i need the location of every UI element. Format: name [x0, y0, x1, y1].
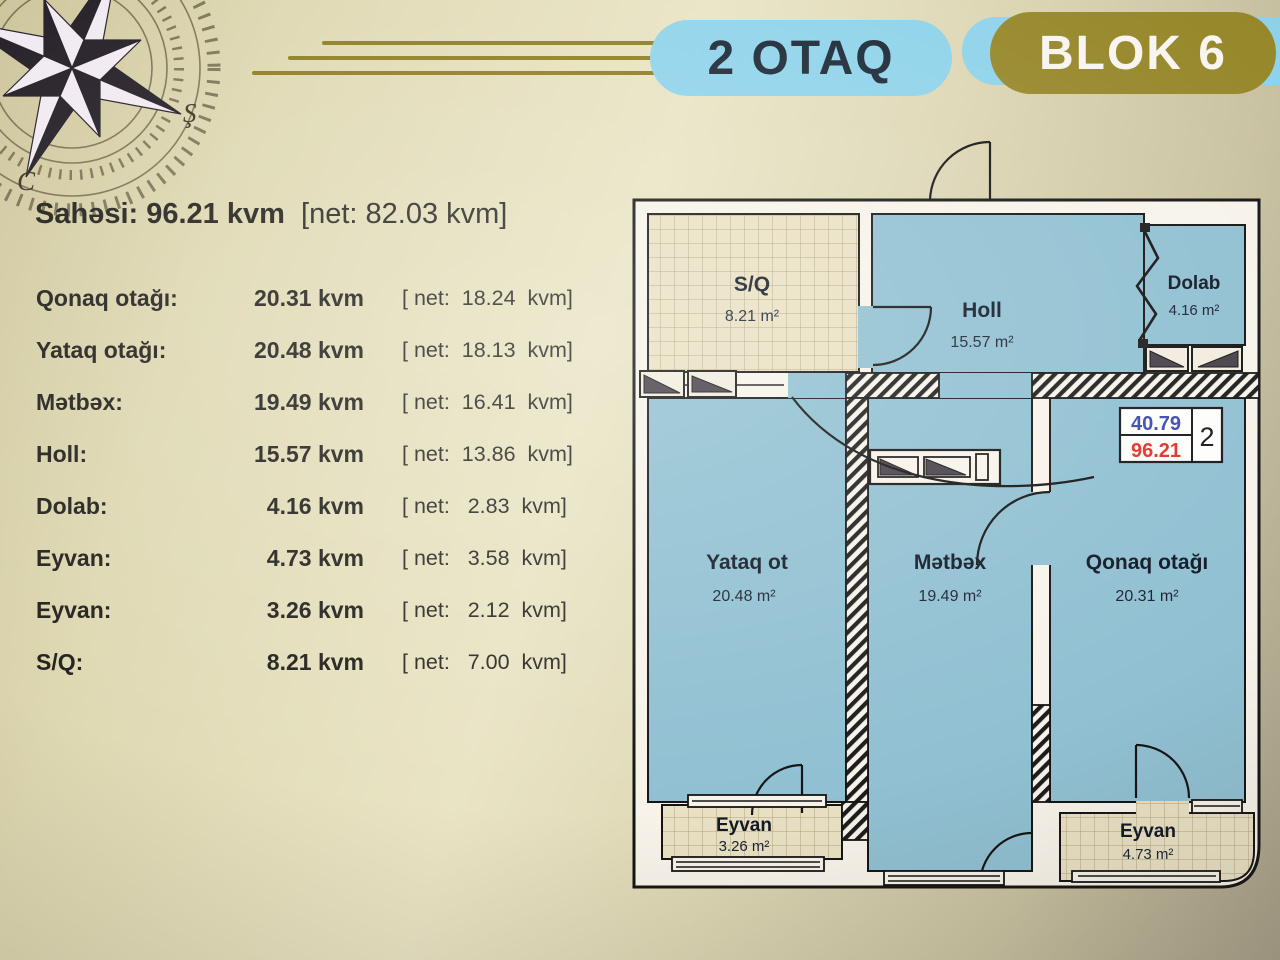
- deco-line-1: [322, 41, 660, 45]
- table-row: Holl:15.57 kvm[ net: 13.86 kvm]: [36, 428, 611, 480]
- compass-label-c: C: [17, 166, 36, 196]
- row-net: [ net: 16.41 kvm]: [402, 390, 573, 415]
- table-row: Dolab:4.16 kvm[ net: 2.83 kvm]: [36, 480, 611, 532]
- row-label: Eyvan:: [36, 545, 216, 572]
- summary-gross: 96.21 kvm: [146, 198, 285, 230]
- opening-yataq: [788, 373, 846, 398]
- row-net: [ net: 18.24 kvm]: [402, 286, 573, 311]
- summary-label: Sahəsi:: [35, 198, 138, 230]
- total-area-summary: Sahəsi: 96.21 kvm [net: 82.03 kvm]: [35, 198, 507, 231]
- row-net: [ net: 2.12 kvm]: [402, 598, 567, 623]
- table-row: Qonaq otağı:20.31 kvm[ net: 18.24 kvm]: [36, 272, 611, 324]
- floor-plan: 40.79 96.21 2 S/Q 8.21 m² Holl 15.57 m² …: [632, 85, 1277, 895]
- vent-shafts-dolab: [1146, 347, 1242, 371]
- row-label: Holl:: [36, 441, 216, 468]
- table-row: Eyvan:3.26 kvm[ net: 2.12 kvm]: [36, 584, 611, 636]
- label-dolab: Dolab: [1168, 273, 1221, 294]
- row-value: 4.16 kvm: [216, 493, 364, 520]
- block-number-pill: BLOK 6: [990, 12, 1276, 94]
- label-sq: S/Q: [734, 273, 770, 296]
- room-area-table: Qonaq otağı:20.31 kvm[ net: 18.24 kvm] Y…: [36, 272, 611, 688]
- label-eyvan-big: Eyvan: [1120, 821, 1176, 842]
- area-sq: 8.21 m²: [725, 308, 780, 325]
- row-label: Eyvan:: [36, 597, 216, 624]
- table-row: Eyvan:4.73 kvm[ net: 3.58 kvm]: [36, 532, 611, 584]
- label-metbex: Mətbəx: [914, 551, 987, 574]
- summary-net: [net: 82.03 kvm]: [301, 198, 507, 230]
- vent-shafts-sq: [640, 371, 736, 397]
- row-value: 20.31 kvm: [216, 285, 364, 312]
- compass-star: [0, 0, 181, 177]
- deco-line-3: [252, 71, 660, 75]
- badge-gross-value: 96.21: [1131, 440, 1181, 462]
- row-net: [ net: 7.00 kvm]: [402, 650, 567, 675]
- label-yataq: Yataq ot: [706, 551, 788, 574]
- label-qonaq: Qonaq otağı: [1086, 551, 1209, 574]
- hatch-qonaq-wall: [1032, 705, 1050, 802]
- row-label: Dolab:: [36, 493, 216, 520]
- area-eyvan-small: 3.26 m²: [719, 838, 770, 855]
- hatch-column: [846, 398, 868, 802]
- table-row: Mətbəx:19.49 kvm[ net: 16.41 kvm]: [36, 376, 611, 428]
- opening-corridor: [939, 373, 1032, 398]
- row-value: 20.48 kvm: [216, 337, 364, 364]
- area-metbex: 19.49 m²: [918, 588, 982, 605]
- unit-badge: 40.79 96.21 2: [1120, 408, 1222, 462]
- label-eyvan-small: Eyvan: [716, 815, 772, 836]
- entrance-door: [930, 142, 990, 200]
- badge-unit-count: 2: [1199, 422, 1214, 452]
- area-dolab: 4.16 m²: [1169, 302, 1220, 319]
- row-value: 19.49 kvm: [216, 389, 364, 416]
- row-net: [ net: 18.13 kvm]: [402, 338, 573, 363]
- row-label: Qonaq otağı:: [36, 285, 216, 312]
- deco-line-2: [288, 56, 660, 60]
- row-net: [ net: 2.83 kvm]: [402, 494, 567, 519]
- table-row: Yataq otağı:20.48 kvm[ net: 18.13 kvm]: [36, 324, 611, 376]
- row-net: [ net: 13.86 kvm]: [402, 442, 573, 467]
- row-value: 15.57 kvm: [216, 441, 364, 468]
- row-label: Yataq otağı:: [36, 337, 216, 364]
- area-holl: 15.57 m²: [950, 334, 1014, 351]
- row-net: [ net: 3.58 kvm]: [402, 546, 567, 571]
- row-label: S/Q:: [36, 649, 216, 676]
- table-row: S/Q:8.21 kvm[ net: 7.00 kvm]: [36, 636, 611, 688]
- hatch-column-lower: [842, 802, 868, 840]
- area-qonaq: 20.31 m²: [1115, 588, 1179, 605]
- row-value: 3.26 kvm: [216, 597, 364, 624]
- badge-net-value: 40.79: [1131, 413, 1181, 435]
- hatch-wall-left: [846, 373, 939, 398]
- area-eyvan-big: 4.73 m²: [1123, 846, 1174, 863]
- compass-label-sh: Ş: [183, 98, 197, 128]
- row-label: Mətbəx:: [36, 389, 216, 416]
- label-holl: Holl: [962, 299, 1002, 322]
- hatch-wall-right: [1032, 373, 1259, 398]
- row-value: 8.21 kvm: [216, 649, 364, 676]
- floorplan-poster: Ş C 2 OTAQ BLOK 6 Sahəsi: 96.21 kvm [net…: [0, 0, 1280, 960]
- row-value: 4.73 kvm: [216, 545, 364, 572]
- area-yataq: 20.48 m²: [712, 588, 776, 605]
